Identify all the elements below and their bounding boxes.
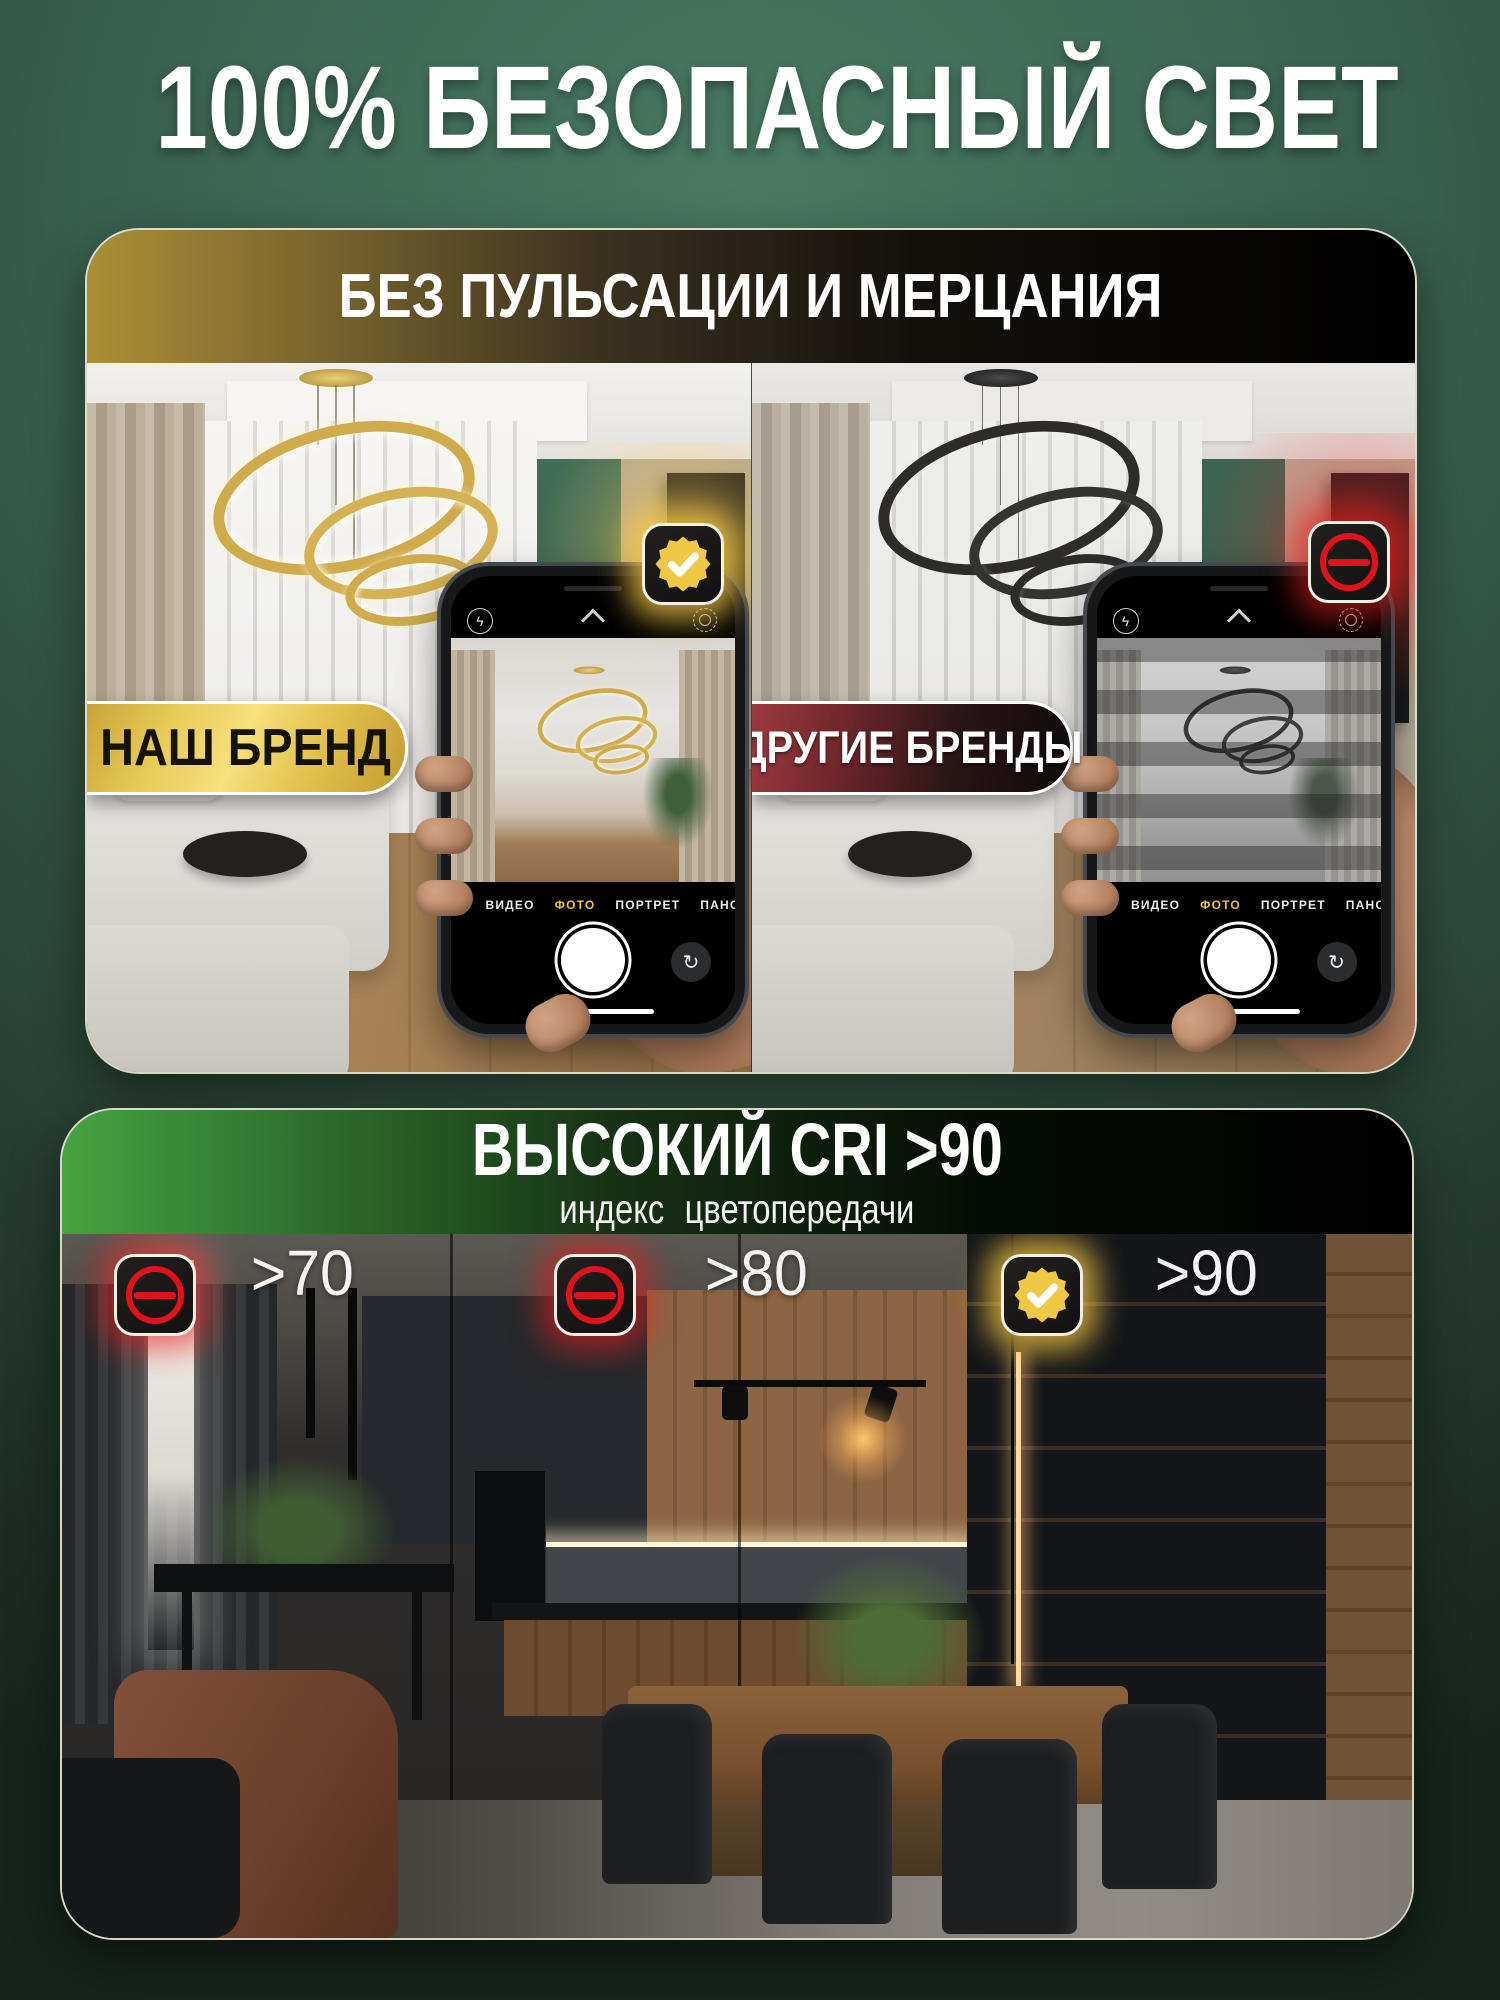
phone-mockup-other-brands: ϟ	[1087, 566, 1391, 1034]
cri-zone-label: >80	[702, 1236, 811, 1310]
camera-mode-selector: ЭФФЕКТ ВИДЕО ФОТО ПОРТРЕТ ПАНОРАМА	[451, 898, 735, 912]
red-no-entry-icon	[1308, 521, 1390, 603]
spotlight	[722, 1386, 748, 1420]
kitchen-photo: >70 >80 >90	[62, 1234, 1412, 1938]
black-table	[154, 1564, 454, 1592]
camera-flip-button: ↻	[1317, 942, 1357, 982]
comparison-photos-row: НАШ БРЕНД	[87, 363, 1415, 1072]
chevron-up-icon	[581, 608, 605, 632]
finger	[415, 756, 473, 792]
pendant-lamp	[306, 1288, 315, 1438]
sofa-chaise	[751, 925, 1014, 1072]
phone-body: ϟ	[1087, 566, 1391, 1034]
flicker-card-title: БЕЗ ПУЛЬСАЦИИ И МЕРЦАНИЯ	[339, 261, 1163, 332]
our-brand-badge: НАШ БРЕНД	[87, 701, 408, 795]
warm-light-strip	[1016, 1352, 1021, 1687]
camera-shutter-button	[1207, 928, 1271, 992]
flicker-bands	[1097, 638, 1381, 882]
coffee-table	[848, 831, 972, 877]
camera-viewfinder-flicker	[1097, 638, 1381, 882]
mode-label-active: ФОТО	[1200, 898, 1241, 912]
coffee-table	[183, 831, 307, 877]
flicker-comparison-card: БЕЗ ПУЛЬСАЦИИ И МЕРЦАНИЯ	[85, 228, 1417, 1074]
flash-icon: ϟ	[467, 608, 493, 634]
mode-label: ПАНОРАМА	[700, 898, 735, 912]
warm-bulb-glow	[818, 1394, 908, 1484]
dark-armchair	[62, 1758, 240, 1938]
phone-body: ϟ	[441, 566, 745, 1034]
wood-cabinets	[647, 1290, 972, 1544]
cri-subtitle: индекс цветопередачи	[515, 1187, 959, 1231]
camera-shutter-button	[561, 928, 625, 992]
cri-card: ВЫСОКИЙ CRI >90 индекс цветопередачи	[60, 1108, 1414, 1940]
page-title: 100% БЕЗОПАСНЫЙ СВЕТ	[0, 40, 1500, 176]
mode-label: ВИДЕО	[1131, 898, 1180, 912]
live-photo-icon	[1339, 608, 1363, 632]
cri-card-header: ВЫСОКИЙ CRI >90 индекс цветопередачи	[62, 1110, 1412, 1234]
mode-label: ПОРТРЕТ	[1261, 898, 1326, 912]
flash-icon: ϟ	[1113, 608, 1139, 634]
dining-chair	[602, 1704, 712, 1884]
pendant-lamp	[348, 1288, 357, 1480]
phone-mockup-our-brand: ϟ	[441, 566, 745, 1034]
chevron-up-icon	[1226, 608, 1250, 632]
cri-title: ВЫСОКИЙ CRI >90	[397, 1113, 1078, 1187]
phone-notch	[1163, 576, 1315, 600]
cri-zone-label: >90	[1152, 1236, 1261, 1310]
red-no-entry-icon	[554, 1254, 636, 1336]
camera-viewfinder	[451, 638, 735, 882]
finger	[415, 818, 473, 854]
dining-chair	[942, 1739, 1077, 1934]
dining-chair	[762, 1734, 892, 1924]
table-plant	[794, 1556, 984, 1706]
cri-zone-label: >70	[248, 1236, 357, 1310]
camera-flip-button: ↻	[671, 942, 711, 982]
live-photo-icon	[693, 608, 717, 632]
mode-label: ПАНОРАМА	[1346, 898, 1381, 912]
mode-label: ПОРТРЕТ	[615, 898, 680, 912]
gold-check-seal-icon	[1001, 1254, 1083, 1336]
mode-label: ВИДЕО	[485, 898, 534, 912]
gold-check-seal-icon	[642, 523, 724, 605]
finger	[415, 880, 473, 916]
camera-mode-selector: ЭФФЕКТ ВИДЕО ФОТО ПОРТРЕТ ПАНОРАМА	[1097, 898, 1381, 912]
other-brands-photo: ДРУГИЕ БРЕНДЫ ϟ	[751, 363, 1416, 1072]
camera-bottom-bar: ЭФФЕКТ ВИДЕО ФОТО ПОРТРЕТ ПАНОРАМА ↻	[1097, 882, 1381, 1024]
camera-app-screen: ϟ	[1097, 576, 1381, 1024]
camera-bottom-bar: ЭФФЕКТ ВИДЕО ФОТО ПОРТРЕТ ПАНОРАМА ↻	[451, 882, 735, 1024]
camera-app-screen: ϟ	[451, 576, 735, 1024]
sofa-chaise	[87, 925, 349, 1072]
mode-label-active: ФОТО	[555, 898, 596, 912]
finger	[1061, 818, 1119, 854]
promo-banner: 100% БЕЗОПАСНЫЙ СВЕТ БЕЗ ПУЛЬСАЦИИ И МЕР…	[0, 0, 1500, 2000]
dining-chair	[1102, 1704, 1217, 1889]
our-brand-photo: НАШ БРЕНД	[87, 363, 751, 1072]
other-brands-badge: ДРУГИЕ БРЕНДЫ	[752, 701, 1073, 795]
red-no-entry-icon	[114, 1254, 196, 1336]
finger	[1061, 880, 1119, 916]
built-in-oven	[474, 1470, 546, 1622]
flicker-card-header: БЕЗ ПУЛЬСАЦИИ И МЕРЦАНИЯ	[87, 230, 1415, 363]
